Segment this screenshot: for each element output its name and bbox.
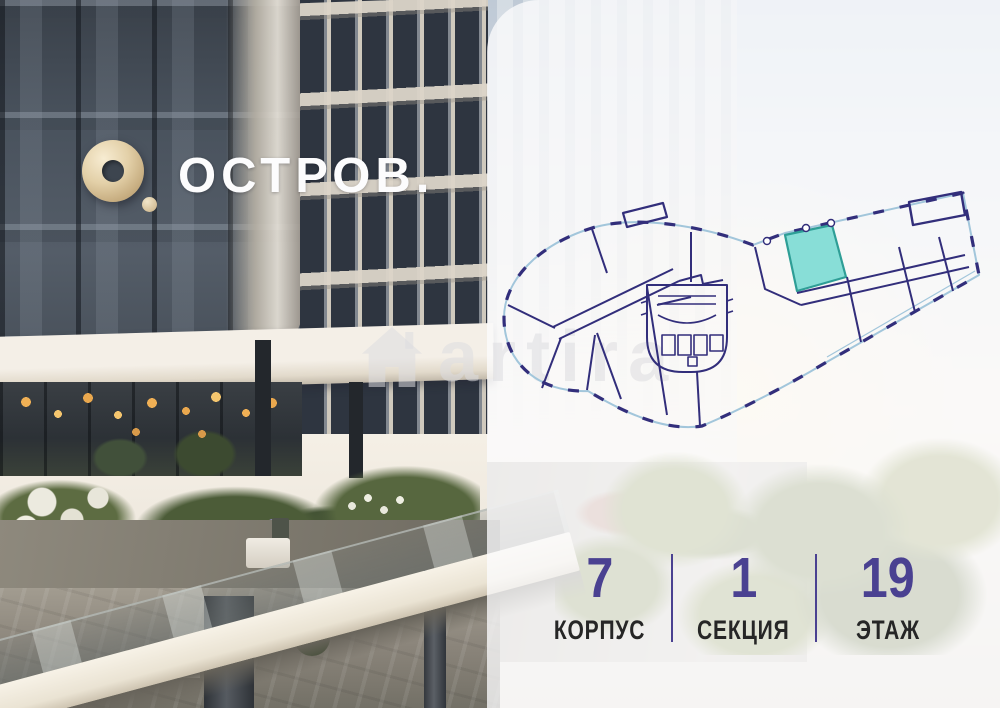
stat-building: 7 КОРПУС: [529, 550, 671, 646]
balcony-door-bump: [764, 238, 771, 245]
apartment-stats: 7 КОРПУС 1 СЕКЦИЯ 19 ЭТАЖ: [487, 550, 1000, 646]
floor-plan: [495, 185, 995, 435]
house-icon: [352, 317, 432, 397]
brand-name: ОСТРОВ.: [178, 148, 434, 204]
stat-floor-value: 19: [861, 550, 915, 607]
stat-section: 1 СЕКЦИЯ: [673, 550, 815, 646]
plan-walls: [508, 229, 969, 426]
balcony-door-bump: [803, 225, 810, 232]
highlighted-unit[interactable]: [785, 225, 846, 291]
balcony-door-bump: [828, 220, 835, 227]
logo-ring-icon: [82, 140, 144, 202]
logo-dot-icon: [142, 197, 157, 212]
stat-building-value: 7: [586, 550, 613, 607]
stat-section-label: СЕКЦИЯ: [673, 615, 815, 646]
stat-floor-label: ЭТАЖ: [817, 615, 959, 646]
stat-building-label: КОРПУС: [529, 615, 671, 646]
brand-logo: ОСТРОВ.: [82, 138, 434, 204]
real-estate-card: ОСТРОВ.: [0, 0, 1000, 708]
stat-floor: 19 ЭТАЖ: [817, 550, 959, 646]
stat-section-value: 1: [730, 550, 757, 607]
balcony: [909, 192, 965, 225]
